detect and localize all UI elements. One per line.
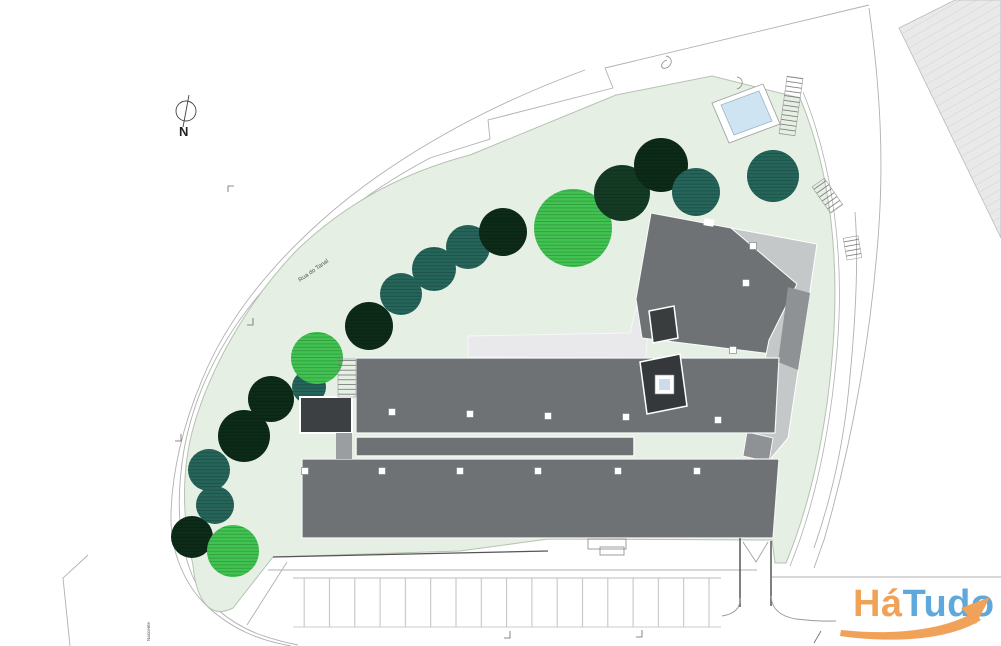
- roof-vent: [467, 411, 474, 418]
- side-label: Nascente: [146, 621, 151, 641]
- annex-connector: [336, 433, 352, 459]
- roof-charcoal-inset: [649, 306, 678, 343]
- entrance-outline: [588, 539, 626, 549]
- tree-texture: [248, 376, 294, 422]
- survey-marker: [175, 434, 181, 441]
- stairs-icon: [843, 236, 862, 260]
- site-plan-svg: N Rua do Tanal Nascente HáTudo: [0, 0, 1001, 646]
- roof-vent: [694, 468, 701, 475]
- tree-texture: [479, 208, 527, 256]
- roof-vent: [389, 409, 396, 416]
- roof-vent: [743, 280, 750, 287]
- neighbor-building: [899, 0, 1001, 238]
- roof-vent: [750, 243, 757, 250]
- driveway-ramp-mark: [743, 542, 768, 562]
- roof-vent: [457, 468, 464, 475]
- skylight-glass: [659, 379, 670, 390]
- tree-texture: [747, 150, 799, 202]
- north-label: N: [179, 124, 188, 139]
- roof-vent: [545, 413, 552, 420]
- site-plan-image: N Rua do Tanal Nascente HáTudo: [0, 0, 1001, 646]
- annex-charcoal: [300, 397, 352, 433]
- survey-marker: [228, 186, 234, 192]
- entrance-outline: [600, 547, 624, 555]
- roof-vent: [535, 468, 542, 475]
- tree-texture: [345, 302, 393, 350]
- tree-texture: [207, 525, 259, 577]
- stairs-icon: [338, 359, 356, 397]
- gate-squiggle: [662, 56, 672, 68]
- logo-text-ha: Há: [853, 583, 903, 625]
- roof-vent: [302, 468, 309, 475]
- roof-vent: [379, 468, 386, 475]
- roof-vent: [730, 347, 737, 354]
- watermark-logo: HáTudo: [836, 580, 1001, 646]
- curb-curve: [722, 598, 740, 616]
- survey-marker: [814, 631, 821, 643]
- tree-texture: [196, 486, 234, 524]
- north-arrow-icon: N: [176, 95, 196, 139]
- tree-texture: [188, 449, 230, 491]
- roof-vent: [615, 468, 622, 475]
- survey-marker: [636, 630, 642, 637]
- tree-texture: [171, 516, 213, 558]
- roof-vent: [715, 417, 722, 424]
- tree-texture: [291, 332, 343, 384]
- survey-marker: [504, 631, 510, 638]
- roof-vent: [623, 414, 630, 421]
- corner-lines-bottom-left: [63, 555, 88, 646]
- parking-bays: [293, 578, 721, 627]
- building-bar-thin: [356, 437, 634, 456]
- tree-texture: [672, 168, 720, 216]
